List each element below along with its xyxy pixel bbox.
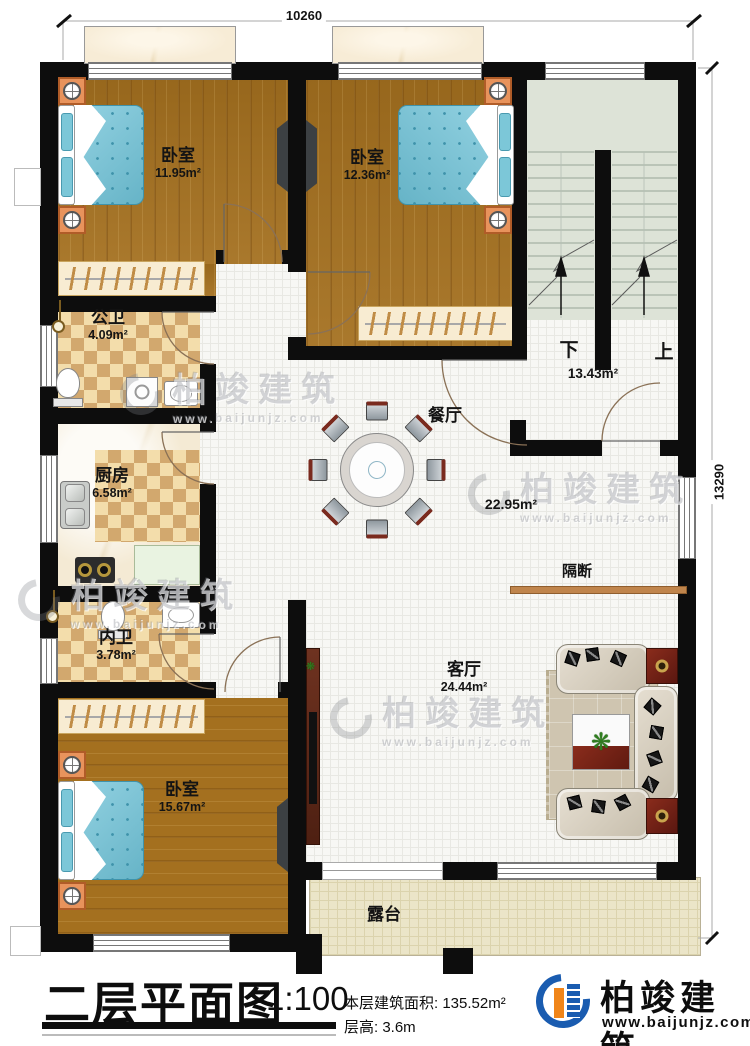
chair [366, 402, 388, 421]
wall [288, 62, 306, 272]
wardrobe [58, 699, 205, 734]
room-label-bedroom3: 卧室 15.67m² [159, 780, 206, 815]
brand-website: www.baijunjz.com [602, 1014, 750, 1031]
wall [510, 420, 526, 440]
stair-up-text: 上 [654, 342, 673, 363]
room-name: 餐厅 [428, 406, 462, 426]
brand-name: 柏竣建筑 [600, 970, 746, 1046]
cushion [649, 725, 664, 740]
pillow [61, 832, 73, 872]
room-label-living: 客厅 24.44m² [441, 660, 488, 695]
tv [309, 712, 317, 804]
room-area: 3.78m² [96, 648, 136, 663]
room-name: 内卫 [96, 628, 136, 648]
lamp-icon [63, 211, 81, 229]
window [40, 325, 58, 387]
wardrobe [358, 306, 513, 341]
exterior-pier [10, 926, 41, 956]
pendant-lamp-icon [46, 610, 59, 623]
floor-plan-canvas: ❋ ❋ 柏竣建筑 www.baijunjz.com 柏竣建筑 www.baiju… [0, 0, 750, 1046]
stove [75, 557, 115, 583]
wall [510, 440, 602, 456]
pendant-lamp-icon [52, 320, 65, 333]
nightstand [484, 206, 512, 234]
pillow [499, 157, 511, 197]
room-name: 客厅 [441, 660, 488, 680]
wardrobe [58, 261, 205, 296]
wall [200, 364, 216, 408]
wall [40, 586, 216, 602]
room-area: 11.95m² [155, 166, 201, 181]
window [93, 934, 230, 952]
partition-text: 隔断 [562, 563, 592, 580]
lamp-icon [63, 887, 81, 905]
lamp-icon [489, 211, 507, 229]
wall [40, 682, 216, 698]
kitchen-sink [60, 481, 90, 529]
pillow [61, 157, 73, 197]
tv [306, 120, 317, 192]
brand-logo: 柏竣建筑 www.baijunjz.com [536, 970, 746, 1042]
room-label-dining: 餐厅 [428, 406, 462, 426]
burner-icon [78, 563, 92, 577]
washing-machine [126, 377, 158, 407]
room-label-kitchen: 厨房 6.58m² [92, 466, 132, 501]
chair [427, 459, 446, 481]
nightstand [484, 77, 512, 105]
wall [216, 250, 224, 264]
title-underline-thin [42, 1034, 336, 1036]
nightstand [58, 77, 86, 105]
window [88, 62, 232, 80]
room-area: 24.44m² [441, 680, 488, 695]
window [40, 638, 58, 684]
bay-window [84, 26, 236, 64]
bay-window [332, 26, 484, 64]
stair-down-text: 下 [559, 340, 578, 361]
wall-stair-spine [595, 150, 611, 370]
cushion [585, 647, 600, 662]
title-underline [42, 1022, 336, 1029]
dining-table [340, 433, 414, 507]
partition-label: 隔断 [562, 562, 592, 581]
chair [366, 520, 388, 539]
floor-height-text: 层高: 3.6m [344, 1016, 416, 1037]
pillow [61, 113, 73, 151]
room-name: 卧室 [159, 780, 206, 800]
wall [660, 440, 696, 456]
lamp-icon [63, 82, 81, 100]
wall [200, 484, 216, 586]
stair-up-label: 上 [654, 342, 673, 365]
bed [58, 781, 144, 880]
stair-down-label: 下 [559, 340, 578, 363]
nightstand [58, 206, 86, 234]
wall [288, 346, 527, 360]
room-area: 13.43m² [568, 366, 618, 382]
terrace-text: 露台 [367, 905, 401, 924]
burner-icon [97, 563, 111, 577]
sink [164, 381, 198, 406]
low-window [322, 862, 443, 880]
sink [162, 602, 200, 628]
toilet [56, 368, 80, 398]
room-label-bedroom2: 卧室 12.36m² [344, 148, 391, 183]
tv [277, 798, 288, 872]
chair [309, 459, 328, 481]
lamp-icon [489, 82, 507, 100]
pillow [61, 789, 73, 827]
window [338, 62, 482, 80]
wall [512, 62, 527, 347]
wall [40, 408, 216, 424]
floor-area-text: 本层建筑面积: 135.52m² [344, 992, 506, 1013]
dimension-top: 10260 [282, 8, 326, 23]
wall [282, 250, 290, 264]
room-area: 4.09m² [88, 328, 128, 343]
sliding-door [497, 862, 657, 880]
window [545, 62, 645, 80]
window [678, 477, 696, 559]
terrace-pillar [443, 948, 473, 974]
wall [288, 600, 306, 952]
lamp-icon [63, 756, 81, 774]
dimension-right: 13290 [712, 460, 727, 504]
fridge [134, 545, 200, 585]
wall [200, 602, 216, 634]
bed [58, 105, 144, 205]
room-name: 卧室 [344, 148, 391, 168]
logo-building-icon [554, 988, 564, 1018]
toilet [101, 601, 125, 631]
wall [678, 62, 696, 880]
room-area: 12.36m² [344, 168, 391, 183]
room-name: 卧室 [155, 146, 201, 166]
terrace-pillar [296, 948, 322, 974]
room-area: 22.95m² [485, 496, 537, 513]
room-area: 6.58m² [92, 486, 132, 501]
plan-scale: 1:100 [266, 980, 349, 1018]
wall [200, 424, 216, 432]
terrace-label: 露台 [367, 905, 401, 925]
exterior-pier [14, 168, 41, 206]
cushion [591, 799, 606, 814]
logo-building-icon [567, 982, 580, 1018]
nightstand [58, 751, 86, 779]
partition-bar [510, 586, 687, 594]
pillow [499, 113, 511, 151]
bed [398, 105, 514, 205]
room-area-dining: 22.95m² [485, 496, 537, 513]
room-name: 公卫 [88, 308, 128, 328]
room-label-public-bath: 公卫 4.09m² [88, 308, 128, 343]
plant-icon: ❋ [306, 660, 315, 673]
side-table [646, 798, 678, 834]
plant-icon: ❋ [591, 728, 611, 757]
side-table [646, 648, 678, 684]
toilet-tank [53, 398, 83, 407]
room-label-inner-bath: 内卫 3.78m² [96, 628, 136, 663]
room-area: 15.67m² [159, 800, 206, 815]
nightstand [58, 882, 86, 910]
wall [40, 296, 216, 312]
room-label-bedroom1: 卧室 11.95m² [155, 146, 201, 181]
room-name: 厨房 [92, 466, 132, 486]
room-area-stair-hall: 13.43m² [568, 366, 618, 382]
tv [277, 120, 288, 192]
window [40, 455, 58, 543]
